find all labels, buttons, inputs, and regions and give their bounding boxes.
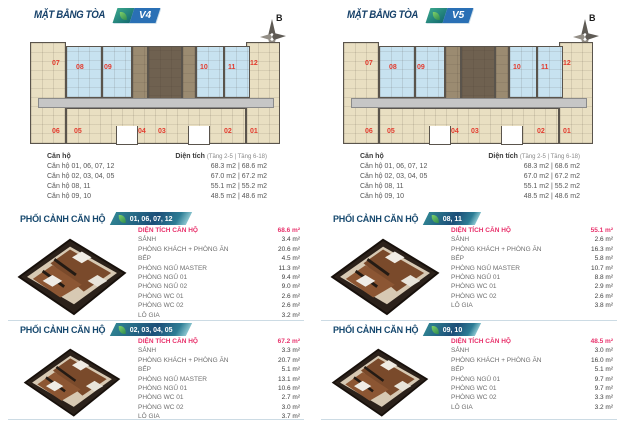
detail-value: 9.7 m² bbox=[595, 385, 613, 392]
section-title: PHỐI CẢNH CĂN HỘ bbox=[333, 325, 418, 335]
detail-label: PHÒNG WC 01 bbox=[451, 385, 497, 392]
plan-service-block bbox=[182, 46, 196, 102]
detail-value: 11.3 m² bbox=[278, 265, 300, 272]
detail-value: 3.0 m² bbox=[282, 404, 300, 411]
detail-value: 10.6 m² bbox=[278, 385, 300, 392]
table-header-row: Căn hộ Diện tích (Tầng 2-5 | Tầng 6-18) bbox=[47, 153, 267, 163]
plan-notch bbox=[429, 126, 451, 145]
detail-label: LÔ GIA bbox=[138, 413, 160, 420]
detail-row: SẢNH3.3 m² bbox=[138, 347, 300, 356]
detail-value: 9.0 m² bbox=[282, 283, 300, 290]
detail-value: 3.7 m² bbox=[282, 413, 300, 420]
tower-badge: V4 bbox=[112, 8, 160, 23]
detail-value: 13.1 m² bbox=[278, 376, 300, 383]
detail-label: LÔ GIA bbox=[138, 312, 160, 319]
floorplan-diagram: 07 08 09 10 11 12 06 05 04 03 02 01 bbox=[323, 36, 615, 150]
detail-value: 10.7 m² bbox=[591, 265, 613, 272]
floorplan-diagram: 07 08 09 10 11 12 06 05 04 03 02 01 bbox=[10, 36, 302, 150]
detail-label: PHÒNG WC 01 bbox=[138, 394, 184, 401]
unit-number: 09 bbox=[417, 64, 425, 71]
unit-area-table: Căn hộ Diện tích (Tầng 2-5 | Tầng 6-18) … bbox=[47, 153, 267, 203]
detail-row: BẾP5.1 m² bbox=[138, 366, 300, 375]
detail-row: PHÒNG NGỦ 0110.6 m² bbox=[138, 385, 300, 394]
detail-value: 16.3 m² bbox=[591, 246, 613, 253]
section-units: 02, 03, 04, 05 bbox=[130, 326, 173, 333]
detail-label: PHÒNG WC 01 bbox=[451, 283, 497, 290]
plan-unit-11 bbox=[537, 46, 563, 98]
detail-row: LÔ GIA3.7 m² bbox=[138, 413, 300, 422]
unit-number: 07 bbox=[52, 60, 60, 67]
detail-row: PHÒNG NGỦ MASTER13.1 m² bbox=[138, 376, 300, 385]
table-row: Căn hộ 01, 06, 07, 12 68.3 m2 | 68.6 m2 bbox=[360, 163, 580, 173]
table-row: Căn hộ 08, 11 55.1 m2 | 55.2 m2 bbox=[360, 183, 580, 193]
plan-unit-09 bbox=[415, 46, 445, 98]
row-units: Căn hộ 08, 11 bbox=[47, 183, 90, 190]
detail-label: BẾP bbox=[138, 255, 151, 262]
panel-tower-v4: MẶT BẰNG TÒA V4 B 07 08 09 10 11 bbox=[0, 0, 312, 420]
detail-value: 48.5 m² bbox=[591, 338, 613, 345]
detail-value: 3.4 m² bbox=[282, 236, 300, 243]
apartment-3d-render bbox=[12, 230, 132, 323]
table-row: Căn hộ 02, 03, 04, 05 67.0 m2 | 67.2 m2 bbox=[47, 173, 267, 183]
detail-value: 16.0 m² bbox=[591, 357, 613, 364]
plan-notch bbox=[501, 126, 523, 145]
plan-service-block bbox=[132, 46, 148, 102]
detail-label: PHÒNG WC 02 bbox=[138, 302, 184, 309]
tower-badge: V5 bbox=[425, 8, 473, 23]
detail-value: 2.6 m² bbox=[282, 293, 300, 300]
column-header-units: Căn hộ bbox=[360, 153, 384, 160]
unit-number: 11 bbox=[541, 64, 548, 71]
detail-label: PHÒNG NGỦ 01 bbox=[451, 376, 500, 383]
detail-row: LÔ GIA3.2 m² bbox=[451, 404, 613, 413]
detail-value: 2.6 m² bbox=[595, 236, 613, 243]
detail-value: 20.6 m² bbox=[278, 246, 300, 253]
table-row: Căn hộ 08, 11 55.1 m2 | 55.2 m2 bbox=[47, 183, 267, 193]
unit-number: 01 bbox=[250, 128, 258, 135]
leaf-logo-icon bbox=[432, 326, 439, 334]
detail-row: PHÒNG NGỦ MASTER11.3 m² bbox=[138, 265, 300, 274]
detail-label: SẢNH bbox=[451, 347, 469, 354]
detail-row: DIỆN TÍCH CĂN HỘ55.1 m² bbox=[451, 227, 613, 236]
detail-row: PHÒNG WC 022.6 m² bbox=[451, 293, 613, 302]
row-sizes: 67.0 m2 | 67.2 m2 bbox=[211, 173, 267, 180]
row-sizes: 67.0 m2 | 67.2 m2 bbox=[524, 173, 580, 180]
section-units-badge: 01, 06, 07, 12 bbox=[110, 212, 192, 225]
unit-number: 02 bbox=[224, 128, 232, 135]
apartment-3d-render bbox=[325, 341, 435, 424]
unit-number: 01 bbox=[563, 128, 571, 135]
detail-row: BẾP5.8 m² bbox=[451, 255, 613, 264]
detail-value: 9.7 m² bbox=[595, 376, 613, 383]
row-units: Căn hộ 01, 06, 07, 12 bbox=[360, 163, 427, 170]
section-heading: PHỐI CẢNH CĂN HỘ 08, 11 bbox=[321, 211, 617, 226]
panel-tower-v5: MẶT BẰNG TÒA V5 B 07 08 09 10 11 bbox=[313, 0, 625, 420]
unit-number: 05 bbox=[387, 128, 395, 135]
detail-value: 2.7 m² bbox=[282, 394, 300, 401]
column-header-units: Căn hộ bbox=[47, 153, 71, 160]
detail-row: PHÒNG WC 023.3 m² bbox=[451, 394, 613, 403]
detail-label: PHÒNG NGỦ 01 bbox=[138, 274, 187, 281]
row-sizes: 55.1 m2 | 55.2 m2 bbox=[524, 183, 580, 190]
section-title: PHỐI CẢNH CĂN HỘ bbox=[20, 325, 105, 335]
detail-label: SẢNH bbox=[451, 236, 469, 243]
apartment-3d-render bbox=[325, 230, 445, 323]
area-detail-table: DIỆN TÍCH CĂN HỘ55.1 m² SẢNH2.6 m² PHÒNG… bbox=[451, 227, 613, 312]
column-header-size-note: (Tầng 2-5 | Tầng 6-18) bbox=[207, 154, 267, 160]
unit-number: 02 bbox=[537, 128, 545, 135]
section-units: 01, 06, 07, 12 bbox=[130, 215, 173, 222]
detail-row: SẢNH3.0 m² bbox=[451, 347, 613, 356]
row-units: Căn hộ 02, 03, 04, 05 bbox=[360, 173, 427, 180]
leaf-logo-icon bbox=[119, 326, 126, 334]
detail-label: BẾP bbox=[451, 366, 464, 373]
detail-label: DIỆN TÍCH CĂN HỘ bbox=[138, 227, 198, 234]
row-units: Căn hộ 02, 03, 04, 05 bbox=[47, 173, 114, 180]
apartment-3d-render bbox=[12, 341, 132, 424]
plan-service-block bbox=[495, 46, 509, 102]
detail-label: PHÒNG NGỦ 01 bbox=[451, 274, 500, 281]
leaf-logo-icon bbox=[432, 215, 439, 223]
plan-corridor bbox=[38, 98, 274, 108]
unit-number: 12 bbox=[563, 60, 571, 67]
plan-unit-11 bbox=[224, 46, 250, 98]
compass-label: B bbox=[276, 13, 283, 23]
detail-value: 4.5 m² bbox=[282, 255, 300, 262]
detail-label: BẾP bbox=[451, 255, 464, 262]
detail-label: DIỆN TÍCH CĂN HỘ bbox=[138, 338, 198, 345]
area-detail-table: DIỆN TÍCH CĂN HỘ48.5 m² SẢNH3.0 m² PHÒNG… bbox=[451, 338, 613, 413]
detail-row: PHÒNG WC 023.0 m² bbox=[138, 404, 300, 413]
detail-value: 3.8 m² bbox=[595, 302, 613, 309]
detail-row: PHÒNG KHÁCH + PHÒNG ĂN20.7 m² bbox=[138, 357, 300, 366]
unit-number: 11 bbox=[228, 64, 235, 71]
section-heading: PHỐI CẢNH CĂN HỘ 01, 06, 07, 12 bbox=[8, 211, 304, 226]
unit-number: 06 bbox=[52, 128, 60, 135]
detail-value: 3.2 m² bbox=[282, 312, 300, 319]
unit-number: 08 bbox=[389, 64, 397, 71]
unit-number: 10 bbox=[513, 64, 521, 71]
detail-row: PHÒNG NGỦ 019.4 m² bbox=[138, 274, 300, 283]
perspective-section-08-11: PHỐI CẢNH CĂN HỘ 08, 11 DIỆN TÍCH CĂN HỘ… bbox=[321, 211, 617, 321]
column-header-size: Diện tích bbox=[488, 153, 518, 160]
row-sizes: 68.3 m2 | 68.6 m2 bbox=[524, 163, 580, 170]
unit-number: 05 bbox=[74, 128, 82, 135]
detail-row: DIỆN TÍCH CĂN HỘ67.2 m² bbox=[138, 338, 300, 347]
plan-unit-10 bbox=[196, 46, 224, 98]
section-units-badge: 09, 10 bbox=[423, 323, 482, 336]
detail-label: PHÒNG KHÁCH + PHÒNG ĂN bbox=[451, 357, 541, 364]
plan-corridor bbox=[351, 98, 587, 108]
detail-label: PHÒNG KHÁCH + PHÒNG ĂN bbox=[451, 246, 541, 253]
detail-row: PHÒNG KHÁCH + PHÒNG ĂN16.3 m² bbox=[451, 246, 613, 255]
detail-row: SẢNH2.6 m² bbox=[451, 236, 613, 245]
detail-value: 2.9 m² bbox=[595, 283, 613, 290]
detail-row: BẾP5.1 m² bbox=[451, 366, 613, 375]
plan-unit-10 bbox=[509, 46, 537, 98]
detail-value: 5.1 m² bbox=[595, 366, 613, 373]
detail-value: 2.6 m² bbox=[595, 293, 613, 300]
row-units: Căn hộ 09, 10 bbox=[47, 193, 91, 200]
unit-number: 12 bbox=[250, 60, 258, 67]
table-row: Căn hộ 01, 06, 07, 12 68.3 m2 | 68.6 m2 bbox=[47, 163, 267, 173]
table-row: Căn hộ 02, 03, 04, 05 67.0 m2 | 67.2 m2 bbox=[360, 173, 580, 183]
detail-row: PHÒNG NGỦ 018.8 m² bbox=[451, 274, 613, 283]
detail-row: PHÒNG KHÁCH + PHÒNG ĂN16.0 m² bbox=[451, 357, 613, 366]
unit-number: 07 bbox=[365, 60, 373, 67]
table-row: Căn hộ 09, 10 48.5 m2 | 48.6 m2 bbox=[360, 193, 580, 203]
row-units: Căn hộ 08, 11 bbox=[360, 183, 403, 190]
plan-unit-09 bbox=[102, 46, 132, 98]
detail-value: 67.2 m² bbox=[278, 338, 300, 345]
detail-value: 3.3 m² bbox=[595, 394, 613, 401]
detail-value: 2.6 m² bbox=[282, 302, 300, 309]
detail-label: PHÒNG KHÁCH + PHÒNG ĂN bbox=[138, 246, 228, 253]
unit-number: 03 bbox=[471, 128, 479, 135]
tower-name: V5 bbox=[452, 10, 464, 21]
detail-label: DIỆN TÍCH CĂN HỘ bbox=[451, 227, 511, 234]
section-title: PHỐI CẢNH CĂN HỘ bbox=[333, 214, 418, 224]
detail-label: LÔ GIA bbox=[451, 404, 473, 411]
plan-unit-08 bbox=[379, 46, 415, 98]
area-detail-table: DIỆN TÍCH CĂN HỘ67.2 m² SẢNH3.3 m² PHÒNG… bbox=[138, 338, 300, 423]
section-units-badge: 02, 03, 04, 05 bbox=[110, 323, 192, 336]
row-units: Căn hộ 09, 10 bbox=[360, 193, 404, 200]
detail-label: PHÒNG WC 01 bbox=[138, 293, 184, 300]
unit-number: 09 bbox=[104, 64, 112, 71]
area-detail-table: DIỆN TÍCH CĂN HỘ68.6 m² SẢNH3.4 m² PHÒNG… bbox=[138, 227, 300, 321]
detail-value: 5.8 m² bbox=[595, 255, 613, 262]
detail-row: PHÒNG WC 019.7 m² bbox=[451, 385, 613, 394]
detail-label: PHÒNG NGỦ MASTER bbox=[451, 265, 520, 272]
unit-number: 03 bbox=[158, 128, 166, 135]
detail-value: 3.2 m² bbox=[595, 404, 613, 411]
row-sizes: 48.5 m2 | 48.6 m2 bbox=[211, 193, 267, 200]
section-units-badge: 08, 11 bbox=[423, 212, 481, 225]
detail-label: SẢNH bbox=[138, 347, 156, 354]
section-units: 09, 10 bbox=[443, 326, 462, 333]
unit-number: 06 bbox=[365, 128, 373, 135]
section-units: 08, 11 bbox=[443, 215, 462, 222]
detail-label: PHÒNG WC 02 bbox=[451, 293, 497, 300]
detail-label: PHÒNG NGỦ 02 bbox=[138, 283, 187, 290]
detail-value: 3.3 m² bbox=[282, 347, 300, 354]
row-sizes: 48.5 m2 | 48.6 m2 bbox=[524, 193, 580, 200]
panel-header: MẶT BẰNG TÒA V4 bbox=[34, 7, 158, 23]
detail-row: PHÒNG NGỦ 029.0 m² bbox=[138, 283, 300, 292]
tower-name: V4 bbox=[139, 10, 151, 21]
unit-number: 10 bbox=[200, 64, 208, 71]
detail-label: DIỆN TÍCH CĂN HỘ bbox=[451, 338, 511, 345]
section-heading: PHỐI CẢNH CĂN HỘ 09, 10 bbox=[321, 322, 617, 337]
detail-row: DIỆN TÍCH CĂN HỘ48.5 m² bbox=[451, 338, 613, 347]
detail-value: 20.7 m² bbox=[278, 357, 300, 364]
column-header-size: Diện tích bbox=[175, 153, 205, 160]
detail-row: PHÒNG NGỦ 019.7 m² bbox=[451, 376, 613, 385]
plan-unit-08 bbox=[66, 46, 102, 98]
detail-label: PHÒNG NGỦ MASTER bbox=[138, 376, 207, 383]
panel-header: MẶT BẰNG TÒA V5 bbox=[347, 7, 471, 23]
section-heading: PHỐI CẢNH CĂN HỘ 02, 03, 04, 05 bbox=[8, 322, 304, 337]
plan-bottom-row bbox=[66, 108, 246, 144]
detail-value: 5.1 m² bbox=[282, 366, 300, 373]
detail-value: 55.1 m² bbox=[591, 227, 613, 234]
perspective-section-09-10: PHỐI CẢNH CĂN HỘ 09, 10 DIỆN TÍCH CĂN HỘ… bbox=[321, 322, 617, 420]
detail-value: 9.4 m² bbox=[282, 274, 300, 281]
detail-label: PHÒNG KHÁCH + PHÒNG ĂN bbox=[138, 357, 228, 364]
plan-core-block bbox=[461, 46, 495, 106]
leaf-logo-icon bbox=[119, 215, 126, 223]
detail-value: 3.0 m² bbox=[595, 347, 613, 354]
detail-row: PHÒNG WC 012.9 m² bbox=[451, 283, 613, 292]
detail-row: PHÒNG NGỦ MASTER10.7 m² bbox=[451, 265, 613, 274]
detail-value: 68.6 m² bbox=[278, 227, 300, 234]
row-sizes: 68.3 m2 | 68.6 m2 bbox=[211, 163, 267, 170]
detail-label: PHÒNG WC 02 bbox=[138, 404, 184, 411]
perspective-section-01-06-07-12: PHỐI CẢNH CĂN HỘ 01, 06, 07, 12 DIỆN TÍC… bbox=[8, 211, 304, 321]
page-title: MẶT BẰNG TÒA bbox=[34, 9, 105, 21]
detail-row: PHÒNG WC 022.6 m² bbox=[138, 302, 300, 311]
plan-bottom-row bbox=[379, 108, 559, 144]
page-title: MẶT BẰNG TÒA bbox=[347, 9, 418, 21]
detail-label: LÔ GIA bbox=[451, 302, 473, 309]
detail-label: BẾP bbox=[138, 366, 151, 373]
unit-number: 04 bbox=[451, 128, 459, 135]
detail-label: PHÒNG NGỦ MASTER bbox=[138, 265, 207, 272]
plan-service-block bbox=[445, 46, 461, 102]
row-units: Căn hộ 01, 06, 07, 12 bbox=[47, 163, 114, 170]
detail-row: DIỆN TÍCH CĂN HỘ68.6 m² bbox=[138, 227, 300, 236]
detail-row: SẢNH3.4 m² bbox=[138, 236, 300, 245]
detail-label: PHÒNG WC 02 bbox=[451, 394, 497, 401]
compass-label: B bbox=[589, 13, 596, 23]
table-row: Căn hộ 09, 10 48.5 m2 | 48.6 m2 bbox=[47, 193, 267, 203]
detail-value: 8.8 m² bbox=[595, 274, 613, 281]
perspective-section-02-03-04-05: PHỐI CẢNH CĂN HỘ 02, 03, 04, 05 DIỆN TÍC… bbox=[8, 322, 304, 420]
table-header-row: Căn hộ Diện tích (Tầng 2-5 | Tầng 6-18) bbox=[360, 153, 580, 163]
detail-label: SẢNH bbox=[138, 236, 156, 243]
detail-row: PHÒNG WC 012.6 m² bbox=[138, 293, 300, 302]
detail-row: PHÒNG WC 012.7 m² bbox=[138, 394, 300, 403]
detail-row: LÔ GIA3.2 m² bbox=[138, 312, 300, 321]
plan-left-wing bbox=[343, 42, 379, 144]
unit-area-table: Căn hộ Diện tích (Tầng 2-5 | Tầng 6-18) … bbox=[360, 153, 580, 203]
row-sizes: 55.1 m2 | 55.2 m2 bbox=[211, 183, 267, 190]
column-header-size-note: (Tầng 2-5 | Tầng 6-18) bbox=[520, 154, 580, 160]
plan-notch bbox=[188, 126, 210, 145]
unit-number: 04 bbox=[138, 128, 146, 135]
plan-notch bbox=[116, 126, 138, 145]
plan-left-wing bbox=[30, 42, 66, 144]
plan-core-block bbox=[148, 46, 182, 106]
detail-label: PHÒNG NGỦ 01 bbox=[138, 385, 187, 392]
detail-row: LÔ GIA3.8 m² bbox=[451, 302, 613, 311]
unit-number: 08 bbox=[76, 64, 84, 71]
detail-row: PHÒNG KHÁCH + PHÒNG ĂN20.6 m² bbox=[138, 246, 300, 255]
detail-row: BẾP4.5 m² bbox=[138, 255, 300, 264]
section-title: PHỐI CẢNH CĂN HỘ bbox=[20, 214, 105, 224]
